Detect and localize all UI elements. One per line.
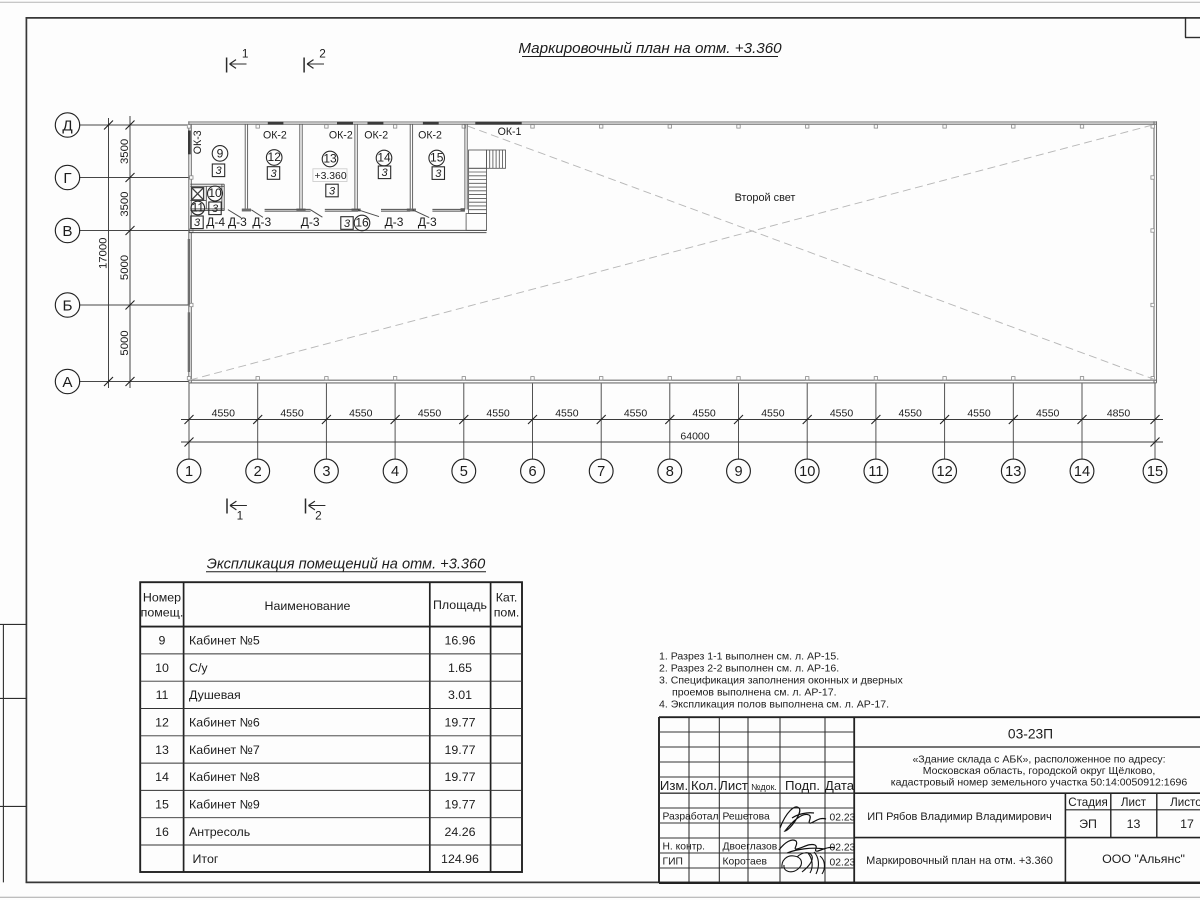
svg-text:Кабинет №5: Кабинет №5 [189,634,260,648]
svg-text:Кабинет №9: Кабинет №9 [189,798,260,812]
svg-text:4550: 4550 [212,407,236,419]
svg-text:11: 11 [192,201,205,215]
svg-text:Кабинет №7: Кабинет №7 [189,743,260,757]
svg-text:19.77: 19.77 [444,743,475,757]
svg-text:Итог: Итог [193,852,219,866]
svg-text:4: 4 [391,464,399,480]
svg-text:4550: 4550 [555,407,579,419]
svg-text:3: 3 [322,464,330,480]
svg-text:ИП Рябов Владимир Владимирович: ИП Рябов Владимир Владимирович [867,811,1052,823]
svg-text:4550: 4550 [349,407,373,419]
svg-text:3.01: 3.01 [448,688,472,702]
svg-text:14: 14 [1074,464,1090,480]
svg-text:16.96: 16.96 [444,634,475,648]
svg-text:11: 11 [156,688,169,702]
svg-text:ОК-3: ОК-3 [192,130,204,154]
svg-text:ЭП: ЭП [1079,817,1097,831]
svg-text:15: 15 [1147,464,1163,480]
svg-text:Антресоль: Антресоль [189,825,250,839]
svg-text:Д-3: Д-3 [252,215,271,229]
svg-text:02.23: 02.23 [830,858,856,869]
svg-text:4550: 4550 [967,407,991,419]
svg-text:Кат.: Кат. [496,591,518,605]
svg-text:1.65: 1.65 [448,661,472,675]
svg-text:02.23: 02.23 [830,813,856,824]
svg-text:4550: 4550 [692,407,716,419]
svg-text:14: 14 [155,770,169,784]
svg-text:+3.360: +3.360 [315,171,347,182]
svg-text:ОК-2: ОК-2 [329,130,353,142]
svg-text:Экспликация помещений на отм.: Экспликация помещений на отм. +3.360 [207,557,485,573]
svg-text:7: 7 [597,464,605,480]
svg-text:ООО "Альянс": ООО "Альянс" [1102,852,1185,866]
svg-text:Листов: Листов [1170,796,1200,809]
svg-text:4550: 4550 [280,407,304,419]
svg-text:Д-3: Д-3 [301,215,320,229]
svg-text:12: 12 [268,150,282,164]
svg-text:8: 8 [666,464,674,480]
svg-text:5000: 5000 [119,255,131,280]
svg-text:№док.: №док. [751,782,777,792]
svg-text:ОК-2: ОК-2 [364,130,388,142]
svg-text:16: 16 [155,825,169,839]
svg-text:24.26: 24.26 [444,825,475,839]
svg-text:4850: 4850 [1107,407,1131,419]
svg-text:2: 2 [319,47,326,61]
svg-text:15: 15 [430,151,444,165]
svg-text:Двоеглазов: Двоеглазов [723,842,778,853]
svg-text:Подп.: Подп. [785,778,820,793]
svg-text:4550: 4550 [1036,407,1060,419]
svg-text:помещ.: помещ. [141,606,184,620]
svg-text:4. Экспликация полов выполнена: 4. Экспликация полов выполнена см. л. АР… [659,699,889,711]
svg-text:1: 1 [242,47,249,61]
svg-text:4550: 4550 [624,407,648,419]
svg-text:Душевая: Душевая [189,688,241,702]
svg-text:Г: Г [63,170,71,187]
svg-text:Московская область, городской: Московская область, городской округ Щёлк… [923,765,1156,777]
svg-text:ГИП: ГИП [663,857,683,868]
svg-text:19.77: 19.77 [444,770,475,784]
svg-text:Д-4: Д-4 [206,215,225,229]
svg-text:3500: 3500 [119,139,131,164]
svg-text:Кабинет №8: Кабинет №8 [189,770,260,784]
svg-text:3: 3 [194,217,201,229]
svg-text:124.96: 124.96 [441,852,479,866]
svg-text:1. Разрез 1-1 выполнен см. л.: 1. Разрез 1-1 выполнен см. л. АР-15. [659,651,839,663]
svg-text:3: 3 [435,168,442,180]
svg-text:проемов выполнена см. л. АР-17: проемов выполнена см. л. АР-17. [672,687,837,699]
svg-text:Наименование: Наименование [265,599,351,613]
svg-text:«Здание склада с АБК», располо: «Здание склада с АБК», расположенное по … [912,753,1165,765]
svg-text:3. Спецификация заполнения око: 3. Спецификация заполнения оконных и две… [659,675,903,687]
svg-text:15: 15 [155,798,169,812]
svg-text:3: 3 [270,168,277,180]
svg-text:19.77: 19.77 [444,716,475,730]
svg-text:Маркировочный план на отм. +3.: Маркировочный план на отм. +3.360 [866,855,1053,867]
svg-text:кадастровый номер земельного у: кадастровый номер земельного участка 50:… [891,776,1188,788]
svg-text:17: 17 [1180,817,1194,831]
svg-text:13: 13 [1127,817,1141,831]
svg-text:пом.: пом. [494,606,520,620]
svg-text:Б: Б [63,297,73,314]
svg-text:3: 3 [344,218,351,230]
svg-text:В: В [62,223,72,240]
svg-text:1: 1 [185,464,193,480]
svg-text:4550: 4550 [761,407,785,419]
svg-text:Д-3: Д-3 [385,215,404,229]
svg-text:3: 3 [212,203,219,215]
svg-text:3: 3 [215,165,222,177]
svg-text:Лист: Лист [1121,796,1147,809]
svg-text:10: 10 [155,661,169,675]
svg-text:Д: Д [62,117,72,134]
svg-text:10: 10 [208,186,222,200]
svg-text:2. Разрез 2-2 выполнен см. л.: 2. Разрез 2-2 выполнен см. л. АР-16. [659,663,839,675]
svg-text:5000: 5000 [119,330,131,355]
svg-text:13: 13 [323,152,337,166]
svg-text:12: 12 [155,716,169,730]
svg-text:3: 3 [329,185,336,197]
svg-text:Н. контр.: Н. контр. [663,842,706,853]
svg-text:Коротаев: Коротаев [723,857,768,868]
svg-text:64000: 64000 [680,430,709,442]
svg-text:16: 16 [355,216,369,230]
svg-text:19.77: 19.77 [444,798,475,812]
svg-text:9: 9 [734,464,742,480]
svg-text:3500: 3500 [119,192,131,217]
svg-text:ОК-2: ОК-2 [418,130,442,142]
svg-text:13: 13 [155,743,169,757]
svg-text:10: 10 [799,464,815,480]
svg-text:Номер: Номер [143,591,181,605]
svg-text:ОК-2: ОК-2 [263,130,287,142]
svg-text:Стадия: Стадия [1068,796,1108,809]
svg-text:Кабинет №6: Кабинет №6 [189,716,260,730]
svg-text:1: 1 [237,509,244,523]
svg-text:9: 9 [159,634,166,648]
svg-text:5: 5 [460,464,468,480]
svg-text:Д-3: Д-3 [228,215,247,229]
svg-text:4550: 4550 [486,407,510,419]
svg-text:6: 6 [528,464,536,480]
svg-text:9: 9 [217,146,224,160]
svg-text:4550: 4550 [830,407,854,419]
svg-text:Дата: Дата [825,778,855,793]
svg-text:3: 3 [381,167,388,179]
svg-text:2: 2 [254,464,262,480]
svg-text:Кол.: Кол. [691,778,717,793]
svg-text:А: А [62,374,73,391]
svg-text:4550: 4550 [418,407,442,419]
svg-text:Решетова: Решетова [723,812,770,823]
svg-text:Лист: Лист [719,778,748,793]
svg-text:13: 13 [1005,464,1021,480]
svg-text:4550: 4550 [899,407,923,419]
svg-text:14: 14 [377,151,391,165]
svg-text:Изм.: Изм. [660,778,688,793]
svg-text:03-23П: 03-23П [1008,727,1053,742]
svg-text:Второй свет: Второй свет [735,192,796,204]
svg-text:17000: 17000 [98,238,110,269]
svg-text:Площадь: Площадь [433,598,487,612]
svg-text:2: 2 [315,509,322,523]
svg-text:Маркировочный план на отм. +3.: Маркировочный план на отм. +3.360 [518,40,782,57]
svg-text:11: 11 [868,464,883,480]
svg-text:12: 12 [936,464,952,480]
svg-text:Разработал: Разработал [663,811,719,823]
svg-text:ОК-1: ОК-1 [498,126,522,138]
svg-text:С/у: С/у [189,661,208,675]
svg-text:Д-3: Д-3 [418,215,437,229]
